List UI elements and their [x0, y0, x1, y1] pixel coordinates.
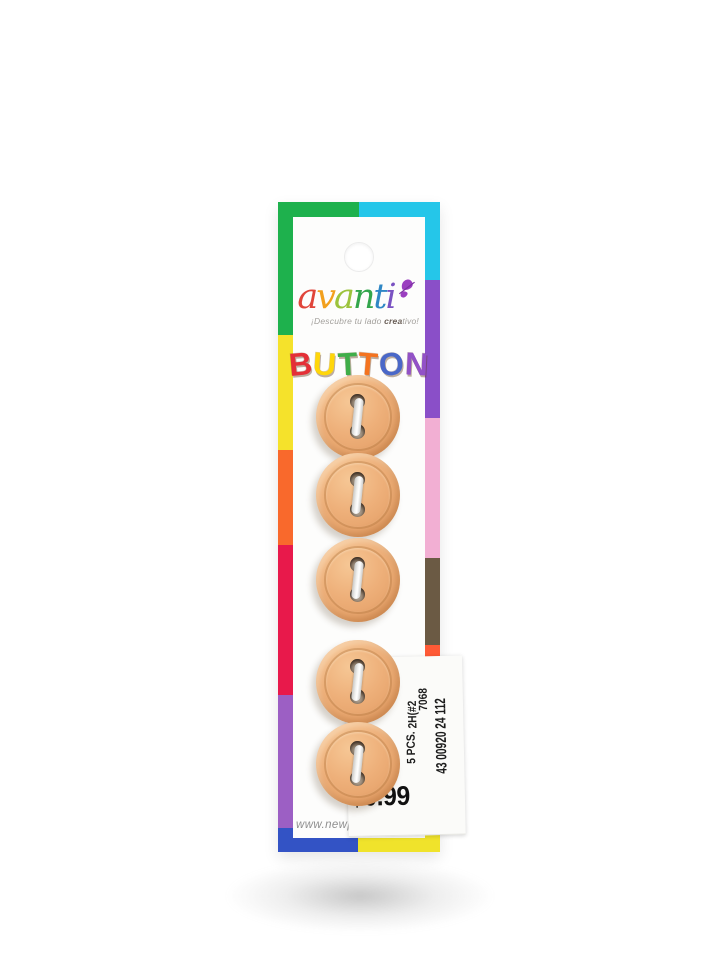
letter-b: B — [288, 347, 315, 381]
border-segment-right-2 — [425, 418, 440, 558]
card-border-top — [278, 202, 440, 217]
sew-button-3 — [316, 538, 400, 622]
border-segment-bottom-0 — [278, 838, 358, 852]
letter-n: n — [353, 277, 374, 317]
letter-o: O — [378, 347, 406, 381]
border-segment-left-4 — [278, 695, 293, 828]
sew-button-1 — [316, 375, 400, 459]
border-segment-left-3 — [278, 545, 293, 695]
tagline-suffix: tivo! — [402, 316, 419, 326]
letter-i: i — [385, 277, 394, 317]
border-segment-left-0 — [278, 202, 293, 335]
sticker-barcode-number: 43 00920 24 112 — [431, 698, 450, 774]
border-segment-right-3 — [425, 558, 440, 645]
brand-block: avanti ¡Descubre tu lado creativo! — [293, 280, 425, 326]
letter-v: v — [316, 277, 334, 317]
letter-a: a — [334, 277, 353, 317]
tagline-bold: crea — [384, 316, 402, 326]
tagline-prefix: ¡Descubre tu lado — [311, 316, 384, 326]
letter-u: U — [312, 347, 338, 381]
brand-tagline: ¡Descubre tu lado creativo! — [299, 316, 431, 326]
border-segment-top-0 — [278, 202, 359, 217]
sticker-style-number: 7068 — [416, 688, 430, 711]
sew-button-4 — [316, 640, 400, 724]
letter-a: a — [297, 277, 316, 317]
brand-wordmark-row: avanti — [297, 280, 420, 315]
border-segment-left-2 — [278, 450, 293, 545]
hang-hole — [344, 242, 374, 272]
sew-button-5 — [316, 722, 400, 806]
brand-wordmark: avanti — [297, 280, 394, 315]
butterfly-icon — [394, 273, 423, 302]
card-border-bottom — [278, 838, 440, 852]
border-segment-bottom-1 — [358, 838, 440, 852]
butterfly-lower-wing — [400, 291, 408, 299]
sticker-quantity: 5 PCS. — [404, 731, 419, 764]
card-drop-shadow — [228, 860, 492, 932]
letter-t: t — [373, 277, 385, 317]
letter-n: N — [404, 347, 430, 380]
border-segment-top-1 — [359, 202, 440, 217]
product-photo-stage: avanti ¡Descubre tu lado creativo! BUTTO… — [0, 0, 720, 960]
sew-button-2 — [316, 453, 400, 537]
card-border-left — [278, 202, 293, 852]
